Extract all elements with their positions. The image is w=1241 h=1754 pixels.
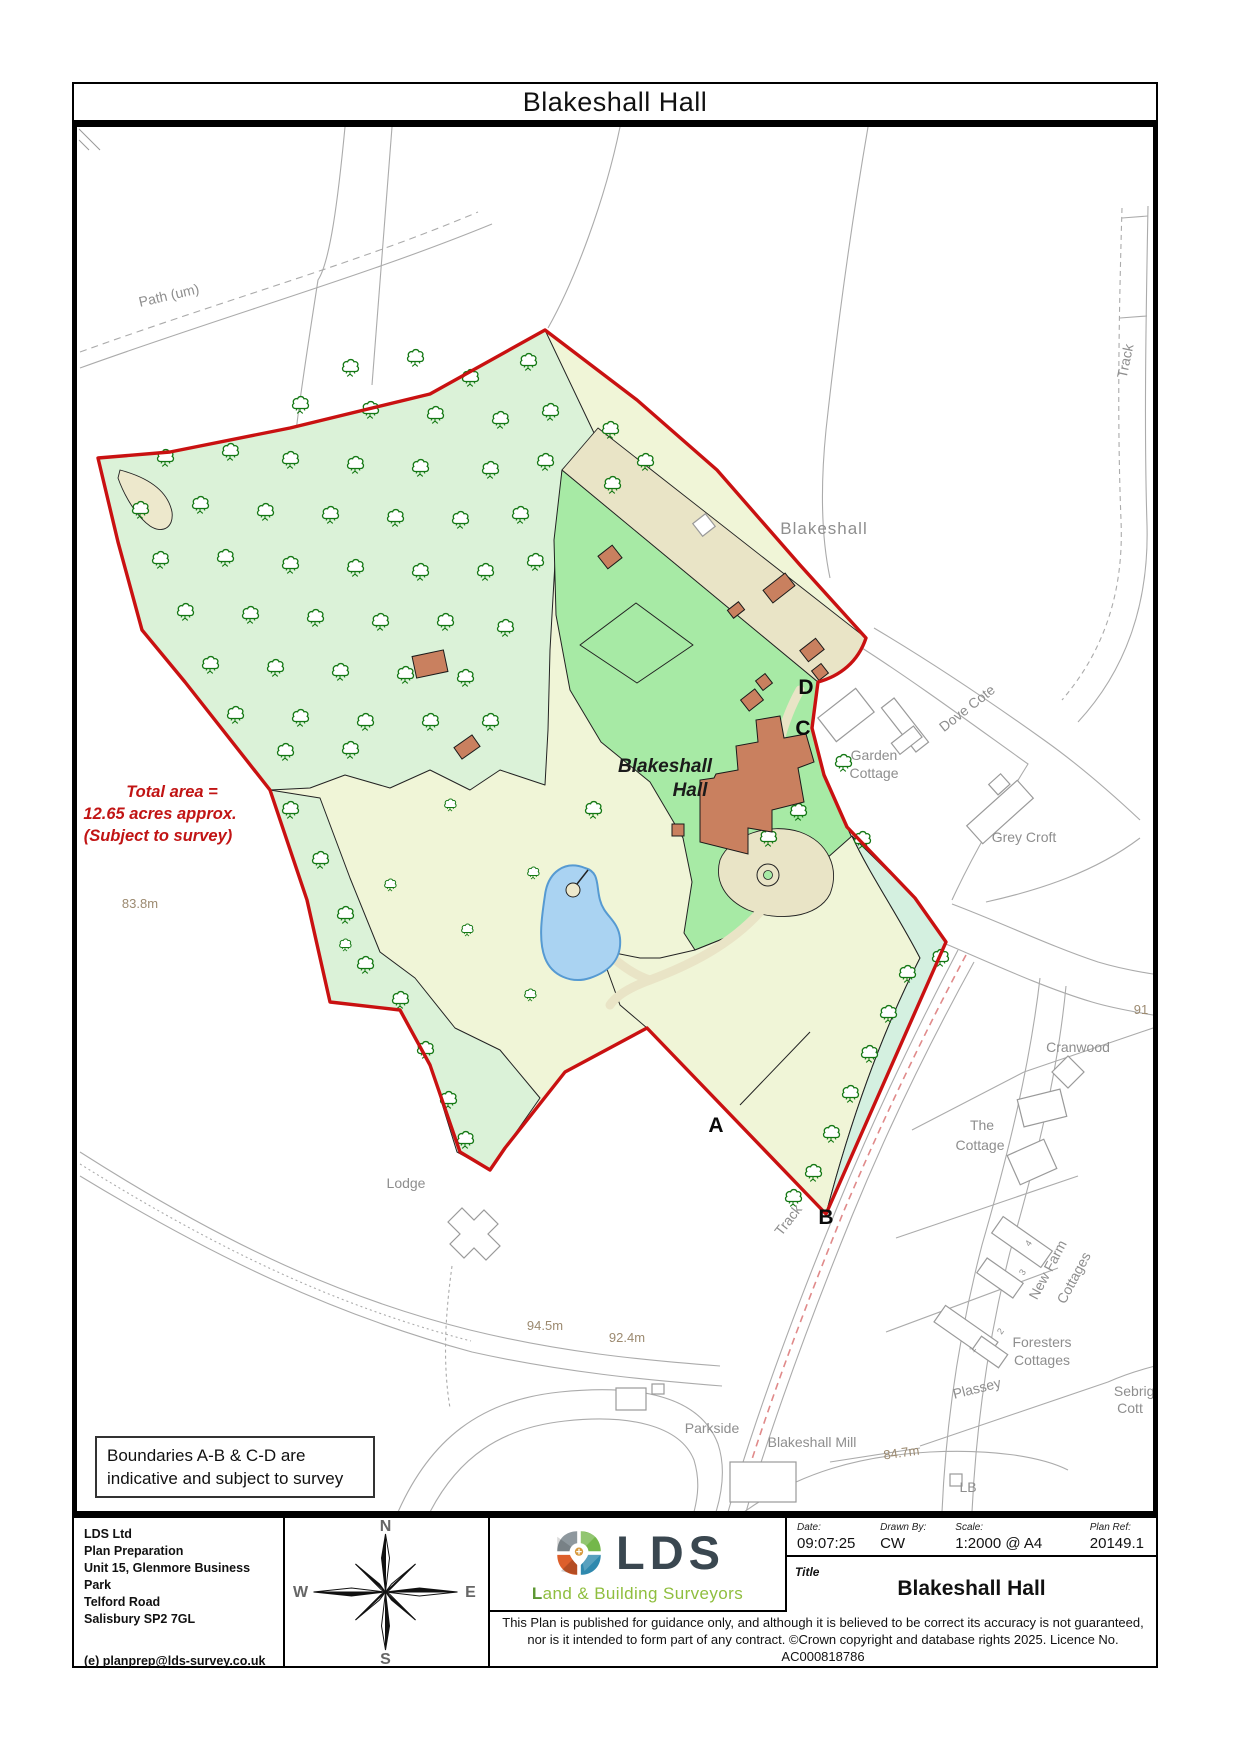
lds-logo-icon: [550, 1524, 608, 1582]
surveyor-address-box: LDS Ltd Plan Preparation Unit 15, Glenmo…: [74, 1518, 285, 1666]
annotation-line-1: Total area =: [126, 783, 218, 801]
plan-ref-field: Plan Ref: 20149.1: [1088, 1520, 1148, 1553]
compass-north-label: N: [380, 1518, 392, 1535]
garden-cottage-building: [818, 688, 874, 741]
compass-south-label: S: [380, 1651, 391, 1666]
svg-text:Hall: Hall: [673, 780, 709, 801]
map-label: Parkside: [685, 1420, 740, 1436]
map-label: Plassey: [951, 1374, 1002, 1401]
compass-east-label: E: [465, 1584, 476, 1601]
map-label: Sebright: [1114, 1383, 1153, 1399]
annotation-line-3: (Subject to survey): [84, 827, 233, 845]
boundary-marker-B: B: [818, 1206, 833, 1229]
site-areas: [98, 330, 946, 1214]
tree-icon: [293, 397, 309, 414]
map-label: Foresters: [1012, 1334, 1071, 1350]
map-label: Cottages: [1014, 1352, 1070, 1368]
map-label: Cott: [1117, 1400, 1143, 1416]
boundary-note-box: Boundaries A-B & C-D are indicative and …: [95, 1436, 375, 1498]
lds-logo-text: LDS: [616, 1531, 725, 1575]
map-label: Dove Cote: [936, 681, 998, 734]
svg-text:Blakeshall: Blakeshall: [618, 756, 713, 777]
company-email: (e) planprep@lds-survey.co.uk: [84, 1653, 273, 1670]
site-plan-map: Total area = 12.65 acres approx. (Subjec…: [77, 127, 1153, 1511]
blakeshall-mill-building: [730, 1462, 796, 1502]
map-label: Blakeshall: [780, 519, 868, 538]
company-line: Unit 15, Glenmore Business Park: [84, 1560, 273, 1594]
compass-west-label: W: [293, 1584, 309, 1601]
map-label: 91: [1134, 1002, 1148, 1017]
map-label: Track: [771, 1201, 805, 1239]
plan-title: Blakeshall Hall: [787, 1577, 1156, 1601]
map-label: 84.7m: [882, 1443, 920, 1463]
lds-logo-tagline: Land & Building Surveyors: [532, 1584, 743, 1604]
plan-info-row: Date: 09:07:25 Drawn By: CW Scale: 1:200…: [787, 1518, 1156, 1557]
note-line-2: indicative and subject to survey: [107, 1467, 363, 1490]
boundary-marker-D: D: [798, 676, 813, 699]
fountain: [757, 864, 779, 886]
plan-title-field: Title Blakeshall Hall: [787, 1559, 1156, 1612]
date-field: Date: 09:07:25: [795, 1520, 878, 1553]
map-label: 2: [995, 1326, 1006, 1336]
tree-icon: [343, 360, 359, 377]
company-line: Plan Preparation: [84, 1543, 273, 1560]
corner-hatch-lines: [79, 129, 100, 150]
map-label: Cranwood: [1046, 1039, 1110, 1055]
company-line: Telford Road: [84, 1594, 273, 1611]
map-label: 83.8m: [122, 896, 158, 911]
page-title: Blakeshall Hall: [72, 82, 1158, 122]
map-label: 3: [1017, 1267, 1028, 1277]
lodge-building: [448, 1208, 500, 1260]
plan-page: Blakeshall Hall: [0, 0, 1241, 1754]
drawn-by-field: Drawn By: CW: [878, 1520, 953, 1553]
company-line: Salisbury SP2 7GL: [84, 1611, 273, 1628]
boundary-marker-A: A: [708, 1114, 723, 1137]
annotation-line-2: 12.65 acres approx.: [83, 805, 236, 823]
woodland-area: [98, 330, 595, 790]
map-label: Cottage: [955, 1137, 1004, 1153]
boundary-marker-C: C: [795, 717, 810, 740]
map-label: Garden: [851, 747, 898, 763]
map-label: Blakeshall Mill: [768, 1434, 857, 1450]
disclaimer: This Plan is published for guidance only…: [490, 1612, 1156, 1666]
map-label: Cottage: [849, 765, 898, 781]
total-area-annotation: Total area = 12.65 acres approx. (Subjec…: [83, 783, 236, 845]
note-line-1: Boundaries A-B & C-D are: [107, 1444, 363, 1467]
the-cottage-building: [1017, 1089, 1066, 1127]
map-label: 94.5m: [527, 1318, 563, 1333]
map-label: 92.4m: [609, 1330, 645, 1345]
map-label: Lodge: [387, 1175, 426, 1191]
tree-icon: [408, 350, 424, 367]
map-label: Track: [1114, 341, 1137, 379]
map-label: Path (um): [137, 280, 200, 309]
parkside-building: [616, 1388, 646, 1410]
map-label: Grey Croft: [992, 829, 1057, 845]
compass-rose-icon: N S W E: [285, 1518, 486, 1666]
map-label: LB: [959, 1479, 976, 1495]
logo-box: LDS Land & Building Surveyors: [490, 1518, 787, 1612]
compass-box: N S W E: [285, 1518, 490, 1666]
scale-field: Scale: 1:2000 @ A4: [953, 1520, 1087, 1553]
plan-info-table: Date: 09:07:25 Drawn By: CW Scale: 1:200…: [787, 1518, 1156, 1612]
map-label: The: [970, 1117, 994, 1133]
company-name: LDS Ltd: [84, 1526, 273, 1543]
title-block: LDS Ltd Plan Preparation Unit 15, Glenmo…: [72, 1516, 1158, 1668]
